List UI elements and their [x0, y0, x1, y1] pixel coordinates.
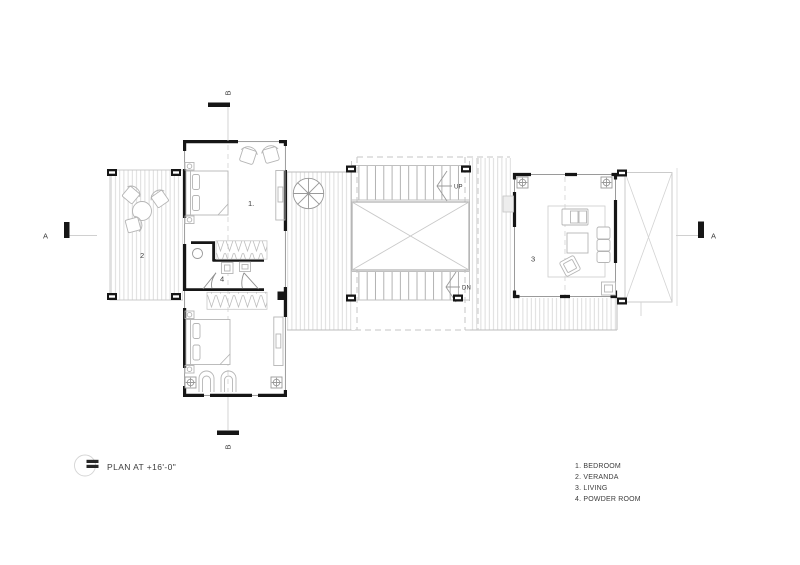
section-a-left-label: A	[43, 232, 48, 241]
post-icon	[617, 298, 627, 305]
powder-room-label: 4	[220, 275, 224, 284]
stair-up-treads	[355, 166, 462, 201]
stair-down-label: DN	[462, 286, 471, 292]
section-b-top-label: B	[224, 90, 233, 95]
chaise-icon	[597, 227, 610, 263]
veranda-deck	[110, 170, 184, 300]
post-icon	[346, 295, 356, 302]
legend-item: 4. POWDER ROOM	[575, 496, 641, 503]
level-symbol-bar	[87, 460, 99, 463]
plan-title: PLAN AT +16'-0"	[107, 462, 176, 472]
title-block: PLAN AT +16'-0"	[75, 455, 177, 476]
living-room: 3	[503, 173, 617, 298]
legend-item: 1. BEDROOM	[575, 463, 621, 470]
section-cut-icon	[217, 431, 239, 436]
east-trellis	[625, 168, 677, 316]
section-b-bottom-label: B	[224, 444, 233, 449]
section-cut-icon	[64, 222, 70, 238]
spiral-stair-icon	[293, 178, 323, 208]
section-a-left: A	[43, 222, 97, 241]
side-table-icon	[602, 282, 616, 295]
lower-deck	[513, 298, 617, 330]
living-label: 3	[531, 255, 535, 264]
wall-pier	[278, 292, 287, 301]
entry-step	[503, 196, 514, 212]
gap-deck	[470, 158, 513, 172]
veranda-label: 2	[140, 251, 144, 260]
post-icon	[461, 166, 471, 173]
column-icon	[601, 177, 612, 188]
legend-item: 3. LIVING	[575, 485, 608, 492]
column-icon	[517, 177, 528, 188]
post-icon	[107, 169, 117, 176]
section-b-top: B	[208, 90, 233, 141]
post-icon	[171, 169, 181, 176]
section-cut-icon	[698, 222, 704, 239]
section-a-right: A	[676, 222, 716, 241]
legend-item: 2. VERANDA	[575, 474, 619, 481]
bed-icon	[186, 171, 228, 215]
post-icon	[171, 293, 181, 300]
post-icon	[617, 170, 627, 177]
section-cut-icon	[208, 103, 230, 108]
bedroom-upper-label: 1.	[248, 199, 254, 208]
column-icon	[271, 377, 282, 388]
column-icon	[185, 377, 196, 388]
post-icon	[346, 166, 356, 173]
post-icon	[453, 295, 463, 302]
closet-lower	[207, 292, 267, 309]
floor-plan-canvas: UP DN 2	[0, 0, 800, 565]
sink-icon	[193, 249, 203, 259]
stair-down-treads	[355, 272, 462, 301]
void-opening	[352, 202, 469, 270]
section-a-right-label: A	[711, 232, 716, 241]
post-icon	[107, 293, 117, 300]
legend: 1. BEDROOM 2. VERANDA 3. LIVING 4. POWDE…	[575, 463, 641, 503]
section-b-bottom: B	[217, 397, 239, 450]
bed-icon	[186, 320, 230, 365]
coffee-table-icon	[567, 233, 588, 253]
stair-up-label: UP	[454, 185, 463, 191]
level-symbol-bar	[87, 465, 99, 468]
closet-upper	[216, 241, 267, 259]
sofa-icon	[562, 209, 588, 225]
trellis-x-icon	[625, 173, 672, 303]
house-block: 4 1.	[183, 140, 287, 397]
